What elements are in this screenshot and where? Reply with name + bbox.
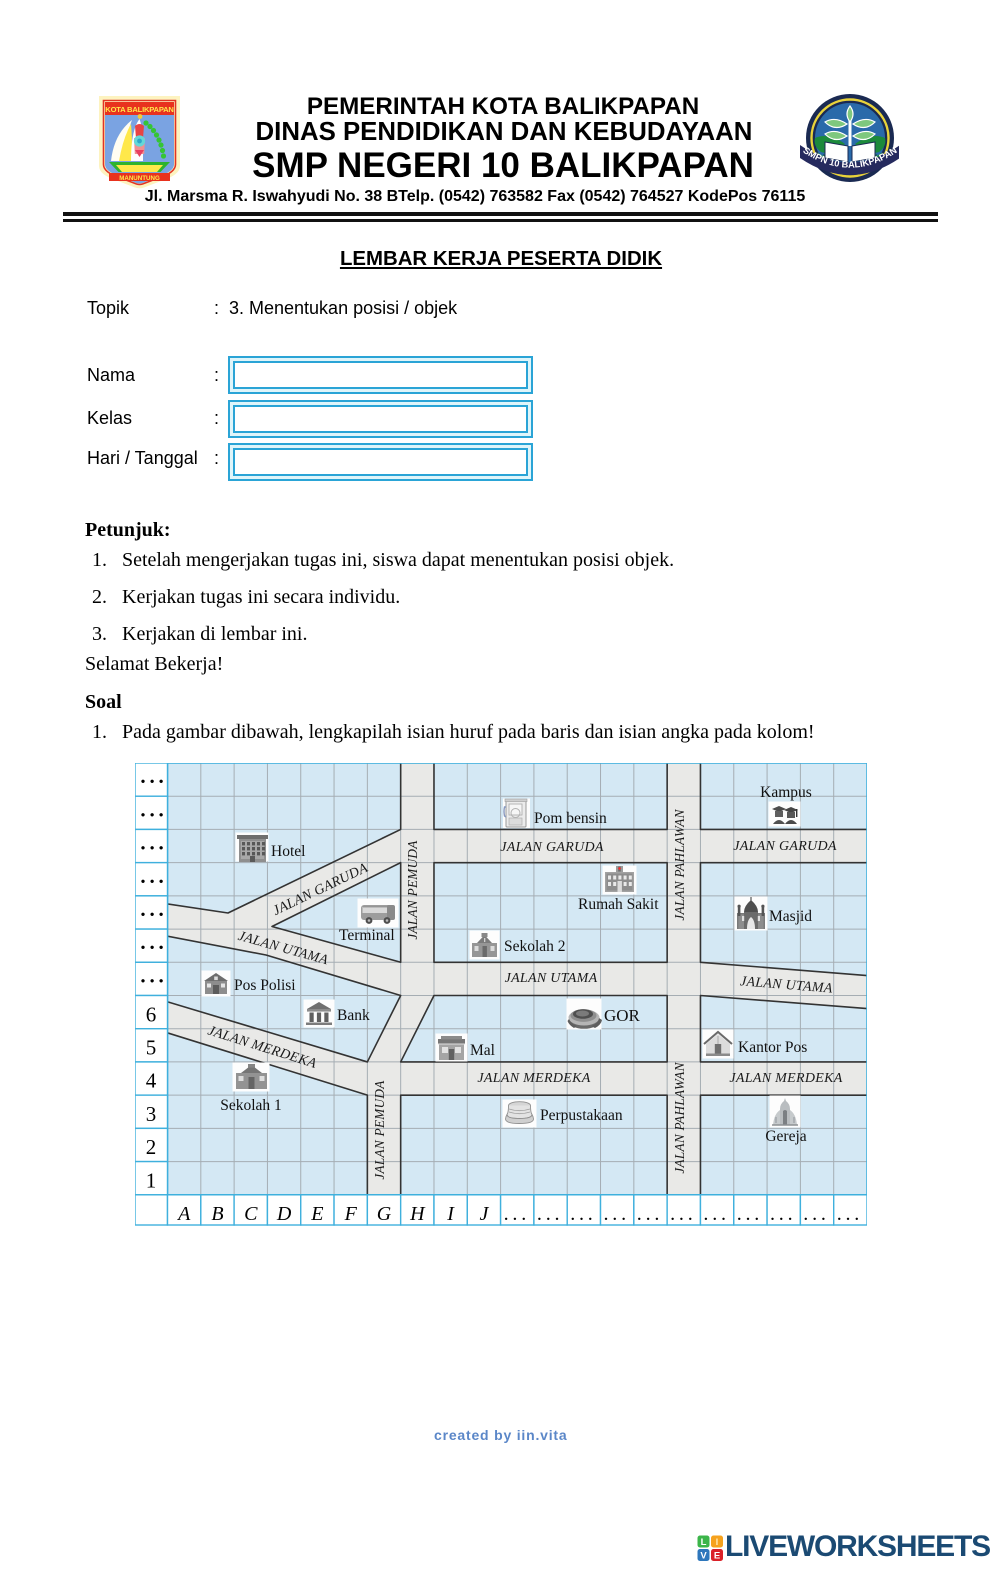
svg-text:H: H [409, 1203, 426, 1225]
svg-text:...: ... [637, 1203, 663, 1225]
svg-text:...: ... [604, 1203, 630, 1225]
svg-text:JALAN MERDEKA: JALAN MERDEKA [477, 1071, 590, 1086]
svg-text:...: ... [737, 1203, 763, 1225]
svg-text:1: 1 [146, 1168, 157, 1192]
svg-text:JALAN PEMUDA: JALAN PEMUDA [405, 840, 420, 940]
svg-text:Perpustakaan: Perpustakaan [540, 1107, 623, 1124]
svg-text:2: 2 [146, 1135, 157, 1159]
svg-text:Pos Polisi: Pos Polisi [234, 977, 296, 994]
svg-text:JALAN PEMUDA: JALAN PEMUDA [372, 1080, 387, 1180]
svg-text:Sekolah 2: Sekolah 2 [504, 938, 566, 955]
svg-text:Masjid: Masjid [769, 908, 812, 925]
svg-text:D: D [276, 1203, 292, 1225]
svg-text:...: ... [837, 1203, 863, 1225]
svg-text:...: ... [770, 1203, 796, 1225]
svg-text:...: ... [504, 1203, 530, 1225]
svg-text:E: E [310, 1203, 323, 1225]
svg-text:MANUNTUNG: MANUNTUNG [119, 175, 160, 182]
svg-text:...: ... [140, 897, 167, 921]
svg-text:Sekolah 1: Sekolah 1 [220, 1097, 282, 1114]
svg-text:A: A [176, 1203, 191, 1225]
svg-text:B: B [211, 1203, 223, 1225]
svg-text:...: ... [571, 1203, 597, 1225]
svg-text:F: F [344, 1203, 358, 1225]
svg-text:JALAN PAHLAWAN: JALAN PAHLAWAN [672, 1061, 687, 1173]
svg-text:...: ... [140, 963, 167, 987]
svg-text:G: G [377, 1203, 392, 1225]
svg-text:3: 3 [146, 1102, 157, 1126]
svg-text:Rumah Sakit: Rumah Sakit [578, 896, 659, 913]
svg-text:E: E [714, 1551, 720, 1562]
svg-text:6: 6 [146, 1002, 157, 1026]
svg-text:L: L [701, 1537, 707, 1548]
svg-text:C: C [244, 1203, 258, 1225]
svg-text:...: ... [537, 1203, 563, 1225]
svg-text:GOR: GOR [604, 1006, 641, 1025]
svg-text:...: ... [804, 1203, 830, 1225]
svg-text:...: ... [140, 831, 167, 855]
svg-text:Pom bensin: Pom bensin [534, 810, 607, 827]
svg-text:I: I [716, 1537, 719, 1548]
svg-text:I: I [446, 1203, 455, 1225]
svg-text:Terminal: Terminal [339, 927, 395, 944]
svg-text:J: J [479, 1203, 489, 1225]
svg-text:Gereja: Gereja [765, 1128, 806, 1145]
svg-text:...: ... [140, 797, 167, 821]
svg-text:...: ... [140, 764, 167, 788]
svg-text:Mal: Mal [470, 1042, 495, 1059]
svg-text:...: ... [704, 1203, 730, 1225]
svg-text:...: ... [140, 864, 167, 888]
svg-text:...: ... [140, 930, 167, 954]
svg-text:Bank: Bank [337, 1007, 370, 1024]
svg-text:5: 5 [146, 1036, 157, 1060]
svg-text:Kampus: Kampus [760, 784, 812, 801]
svg-text:JALAN GARUDA: JALAN GARUDA [733, 839, 837, 854]
svg-text:V: V [700, 1551, 707, 1562]
svg-text:JALAN PAHLAWAN: JALAN PAHLAWAN [672, 808, 687, 920]
svg-text:...: ... [671, 1203, 697, 1225]
svg-text:Kantor Pos: Kantor Pos [738, 1039, 807, 1056]
svg-text:KOTA BALIKPAPAN: KOTA BALIKPAPAN [105, 105, 173, 114]
svg-text:4: 4 [146, 1069, 157, 1093]
svg-text:JALAN GARUDA: JALAN GARUDA [500, 840, 604, 855]
svg-text:Hotel: Hotel [271, 843, 305, 860]
svg-text:JALAN UTAMA: JALAN UTAMA [505, 971, 598, 986]
svg-text:JALAN MERDEKA: JALAN MERDEKA [729, 1071, 842, 1086]
